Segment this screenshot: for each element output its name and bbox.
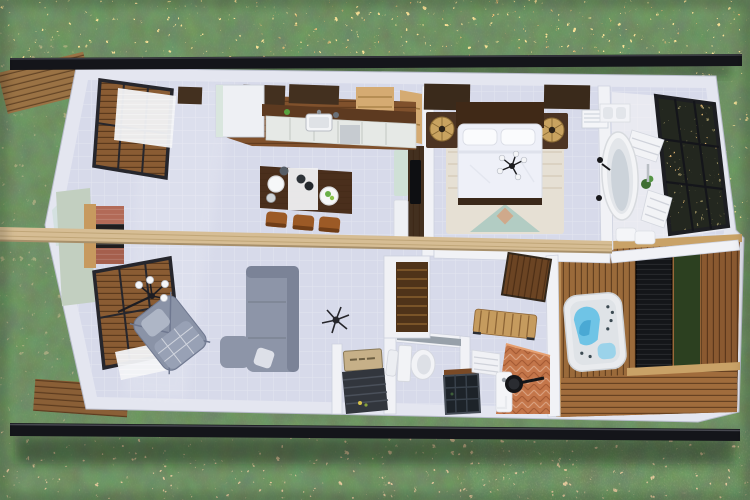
fridge-volume: [216, 85, 264, 137]
stair-flower-leaf: [364, 403, 367, 406]
wall-mounted-tv: [410, 160, 421, 204]
plate-left: [268, 176, 284, 192]
floorplan-render: [0, 0, 750, 500]
kitchen-plant: [284, 109, 290, 115]
hot-tub-footwell: [597, 342, 616, 360]
blinds-slats: [114, 88, 176, 148]
dining-area: [260, 166, 352, 233]
table-runner: [288, 168, 318, 210]
dark-wall-panel-right: [544, 85, 590, 110]
glass-floor-glint: [451, 393, 454, 396]
sofa-chaise: [220, 336, 250, 368]
toilet-tank: [397, 345, 412, 382]
stairwell: [342, 368, 388, 414]
sink-basin: [309, 117, 329, 128]
towel-roll-2: [616, 107, 626, 119]
kitchen-bowl: [333, 112, 339, 118]
glass-floor-panel: [444, 374, 480, 414]
sofa-backrest: [287, 266, 299, 372]
tub-faucet-1: [597, 157, 603, 163]
black-bowl-2: [305, 182, 314, 191]
deck-lower-board-gaps: [560, 370, 737, 417]
towel-roll-1: [603, 107, 613, 119]
pillow-right: [501, 129, 535, 145]
wall-stair-nook: [332, 344, 342, 414]
fan-hub: [333, 317, 340, 324]
shower-head-inner: [509, 379, 520, 390]
floor-towel-2: [635, 231, 655, 244]
scene-svg: [0, 0, 750, 500]
pillow-left: [463, 129, 497, 145]
closet-drawer-slats: [397, 270, 427, 324]
rattan-lamp-left: [430, 117, 454, 141]
plant-on-plate-leaf: [330, 196, 334, 200]
black-bowl-1: [297, 175, 306, 184]
slatted-sliding-door: [502, 253, 551, 301]
lamp-hub: [149, 293, 155, 299]
fridge-side-mint: [216, 85, 223, 137]
stair-flowers: [358, 401, 362, 405]
glass-jar: [267, 194, 276, 203]
window-upper-left: [94, 80, 176, 178]
media-console-mint: [394, 150, 408, 196]
tub-faucet-2: [596, 195, 602, 201]
bed-footboard: [458, 198, 542, 205]
dishwasher-front: [340, 125, 360, 144]
entry: [343, 349, 382, 372]
plant-on-plate: [325, 191, 331, 197]
hot-tub: [563, 292, 627, 373]
floor-towel-1: [616, 228, 636, 241]
media-console-white: [394, 200, 408, 240]
sofa-armrest-top: [246, 266, 298, 278]
gray-bowl: [280, 167, 289, 176]
faucet: [317, 110, 321, 114]
